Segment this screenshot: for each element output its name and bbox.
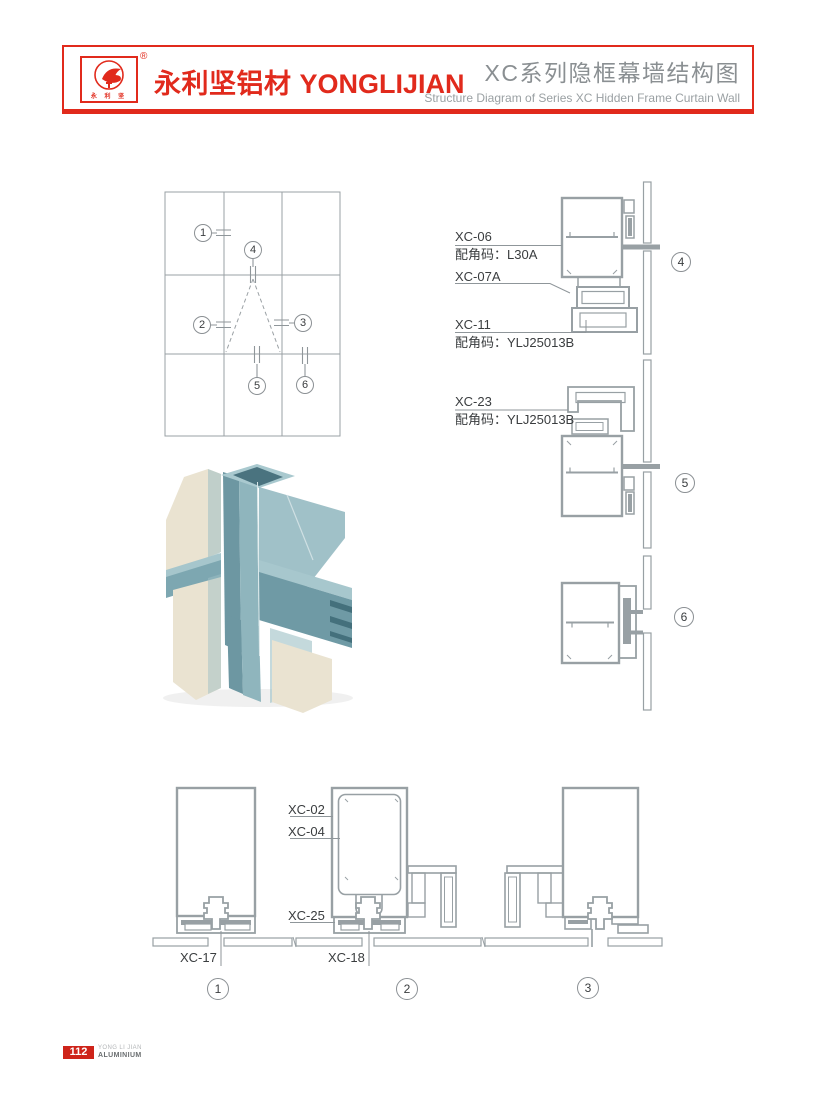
elevation-callout-5: 5 bbox=[248, 377, 266, 395]
glass-line-horizontal bbox=[153, 937, 662, 947]
elevation-callout-6: 6 bbox=[296, 376, 314, 394]
label-xc02: XC-02 bbox=[288, 803, 325, 816]
elevation-grid-diagram bbox=[165, 192, 340, 436]
plan-callout-2: 2 bbox=[396, 978, 418, 1000]
label-xc06: XC-06 bbox=[455, 230, 492, 243]
elevation-callout-3: 3 bbox=[294, 314, 312, 332]
section-detail-6 bbox=[562, 583, 643, 663]
label-xc11-corner-code: 配角码：YLJ25013B bbox=[455, 336, 574, 349]
technical-drawing-layer bbox=[0, 0, 817, 1101]
plan-callout-1: 1 bbox=[207, 978, 229, 1000]
elevation-callout-1: 1 bbox=[194, 224, 212, 242]
footer-brand: YONG LI JIAN ALUMINIUM bbox=[98, 1045, 142, 1059]
footer-brand-name: YONG LI JIAN bbox=[98, 1045, 142, 1052]
elevation-callout-2: 2 bbox=[193, 316, 211, 334]
section-detail-4 bbox=[455, 198, 660, 333]
label-xc18: XC-18 bbox=[328, 951, 365, 964]
section-callout-6: 6 bbox=[674, 607, 694, 627]
assembly-3d-render bbox=[163, 464, 353, 713]
label-xc25: XC-25 bbox=[288, 909, 325, 922]
label-xc23: XC-23 bbox=[455, 395, 492, 408]
page-number-badge: 112 bbox=[63, 1046, 94, 1059]
label-xc06-corner-code: 配角码：L30A bbox=[455, 248, 537, 261]
elevation-callout-4: 4 bbox=[244, 241, 262, 259]
label-xc07a: XC-07A bbox=[455, 270, 501, 283]
label-xc04: XC-04 bbox=[288, 825, 325, 838]
section-callout-5: 5 bbox=[675, 473, 695, 493]
label-xc23-corner-code: 配角码：YLJ25013B bbox=[455, 413, 574, 426]
plan-callout-3: 3 bbox=[577, 977, 599, 999]
footer-brand-aluminium: ALUMINIUM bbox=[98, 1052, 142, 1059]
glass-line-vertical bbox=[644, 182, 652, 710]
section-callout-4: 4 bbox=[671, 252, 691, 272]
label-xc11: XC-11 bbox=[455, 318, 491, 331]
plan-detail-3 bbox=[505, 788, 648, 947]
catalog-page: 永 利 坚 ® 永利坚铝材YONGLIJIAN XC系列隐框幕墙结构图 Stru… bbox=[0, 0, 817, 1101]
label-xc17: XC-17 bbox=[180, 951, 217, 964]
